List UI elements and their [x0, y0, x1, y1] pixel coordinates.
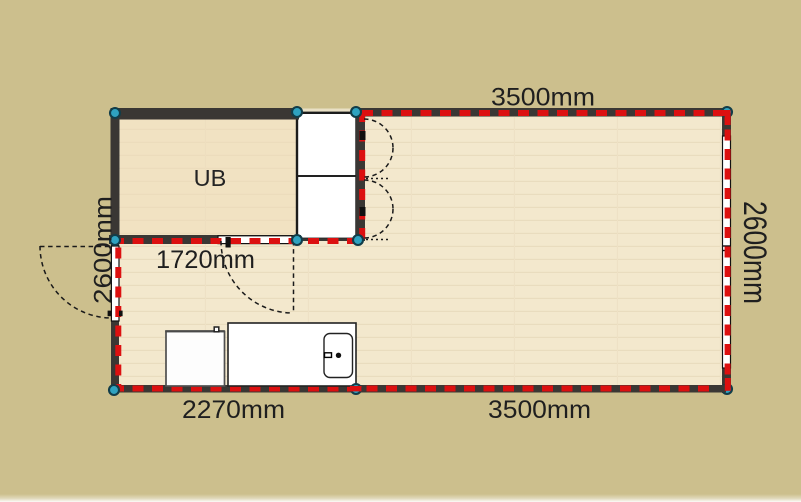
svg-text:1720mm: 1720mm	[156, 246, 255, 274]
svg-text:UB: UB	[194, 165, 227, 191]
svg-text:2600mm: 2600mm	[737, 201, 773, 304]
svg-text:2270mm: 2270mm	[182, 396, 285, 424]
svg-text:3500mm: 3500mm	[488, 396, 591, 424]
svg-text:3500mm: 3500mm	[491, 84, 595, 112]
svg-text:2600mm: 2600mm	[90, 196, 118, 304]
